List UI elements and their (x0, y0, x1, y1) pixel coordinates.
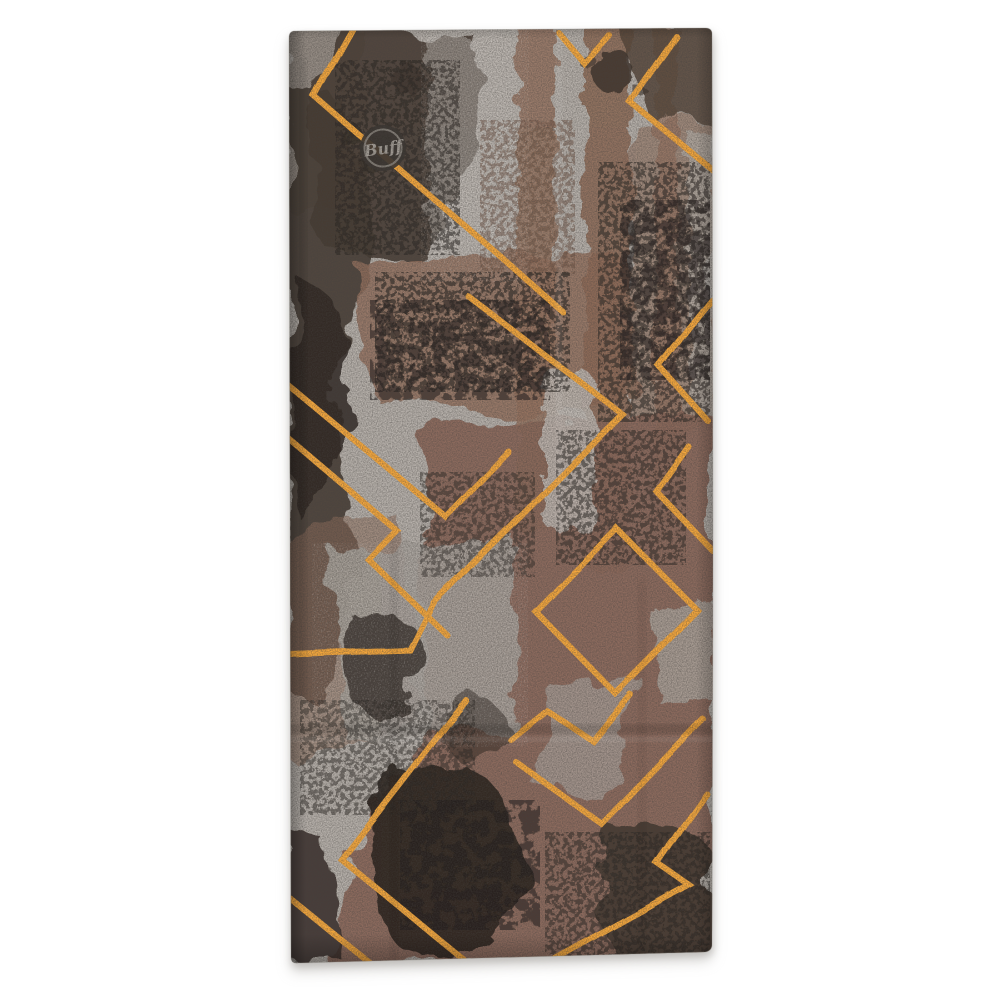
neckwear-product-image: Buff (0, 0, 1000, 1000)
cloth-grain-overlay (285, 25, 717, 967)
neckwear-tube: Buff (285, 25, 717, 967)
product-photo: Buff (0, 0, 1000, 1000)
